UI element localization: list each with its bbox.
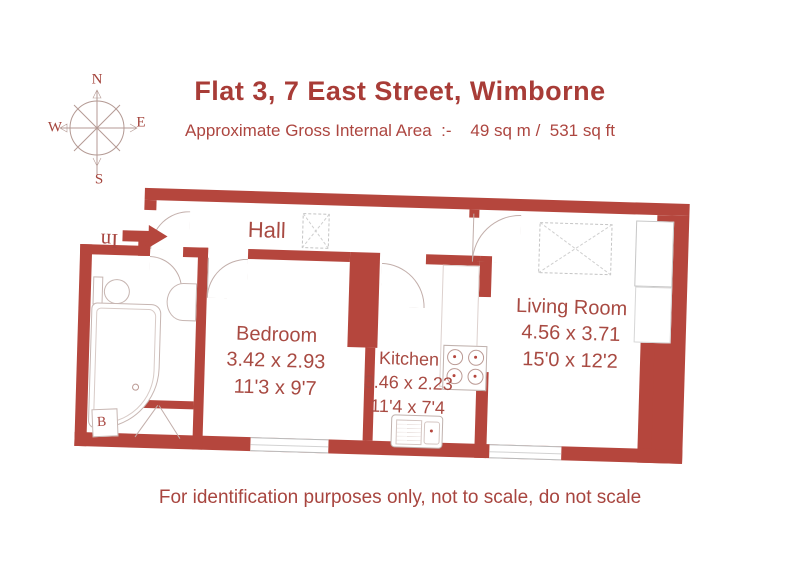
bedroom-door-arc (207, 258, 248, 299)
toilet-cistern-icon (92, 276, 103, 304)
wall-segment (74, 432, 682, 464)
window (489, 444, 561, 460)
kitchen-imperial: 11'4 x 7'4 (337, 393, 478, 421)
hall-label: Hall (216, 214, 317, 246)
kitchen-label: Kitchen 3.46 x 2.23 11'4 x 7'4 (337, 346, 479, 421)
bedroom-label: Bedroom 3.42 x 2.93 11'3 x 9'7 (193, 319, 359, 403)
boiler-icon: B (91, 408, 118, 437)
living-room-label: Living Room 4.56 x 3.71 15'0 x 12'2 (485, 292, 657, 376)
sink-drain-dot (430, 429, 433, 432)
sink-bowl-icon (423, 421, 440, 444)
toilet-icon (104, 279, 131, 305)
wall-segment (248, 249, 350, 262)
sink-drainer-icon (395, 419, 422, 445)
floorplan-page: Flat 3, 7 East Street, Wimborne Approxim… (0, 0, 800, 565)
compass-east-label: E (136, 115, 145, 132)
kitchen-door-arc (381, 263, 426, 308)
wall-segment (145, 188, 690, 216)
disclaimer-text: For identification purposes only, not to… (0, 487, 800, 509)
wall-segment (144, 200, 156, 210)
compass-west-label: W (48, 120, 62, 137)
bedroom-imperial: 11'3 x 9'7 (193, 372, 358, 403)
living-room-door-arc (472, 214, 521, 263)
alcove-recess (634, 220, 674, 287)
skylight-icon (538, 222, 614, 276)
compass-north-label: N (92, 72, 103, 89)
entry-arrow-icon (122, 230, 150, 242)
window (250, 437, 328, 453)
floor-plan: In B Hall Bedroom 3.42 x 2.93 (74, 186, 701, 466)
bathroom-sink-icon (166, 283, 197, 322)
compass-rose-icon: N E S W (36, 58, 164, 198)
entrance-in-label: In (96, 212, 123, 253)
living-room-imperial: 15'0 x 12'2 (485, 345, 656, 376)
boiler-label: B (97, 415, 107, 431)
entry-arrow-head-icon (148, 225, 168, 249)
